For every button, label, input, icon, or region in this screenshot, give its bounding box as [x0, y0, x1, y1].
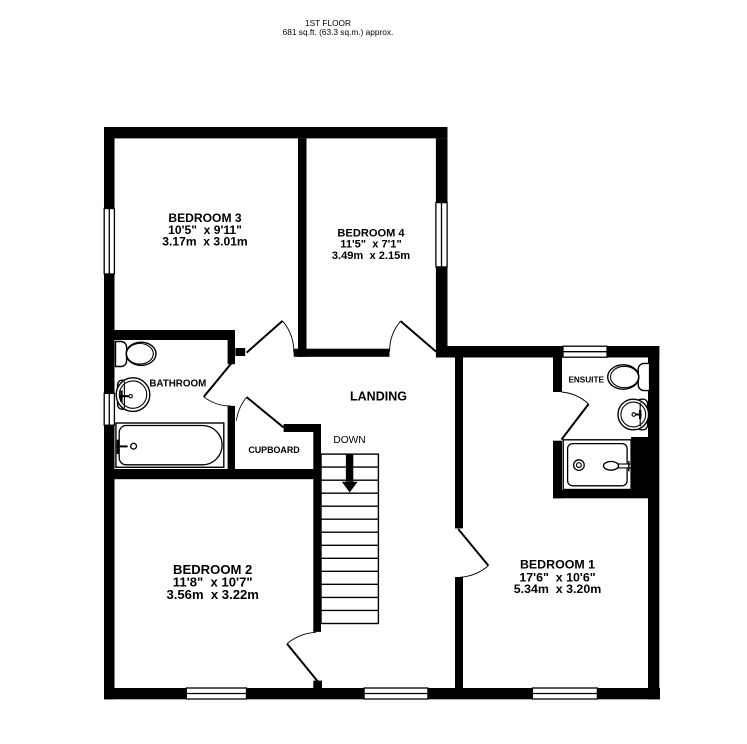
svg-text:681 sq.ft. (63.3 sq.m.) approx: 681 sq.ft. (63.3 sq.m.) approx. — [283, 27, 394, 37]
svg-text:3.56m x 3.22m: 3.56m x 3.22m — [166, 587, 258, 602]
svg-text:ENSUITE: ENSUITE — [568, 376, 604, 385]
svg-text:5.34m x 3.20m: 5.34m x 3.20m — [514, 582, 602, 596]
svg-text:11'5" x 7'1": 11'5" x 7'1" — [340, 239, 401, 251]
svg-text:CUPBOARD: CUPBOARD — [248, 445, 300, 455]
svg-text:DOWN: DOWN — [333, 435, 365, 446]
svg-text:BATHROOM: BATHROOM — [149, 378, 206, 389]
svg-text:LANDING: LANDING — [350, 389, 407, 403]
svg-text:3.49m x 2.15m: 3.49m x 2.15m — [332, 250, 410, 262]
svg-text:3.17m x 3.01m: 3.17m x 3.01m — [162, 235, 247, 249]
svg-text:BEDROOM 4: BEDROOM 4 — [337, 228, 405, 240]
